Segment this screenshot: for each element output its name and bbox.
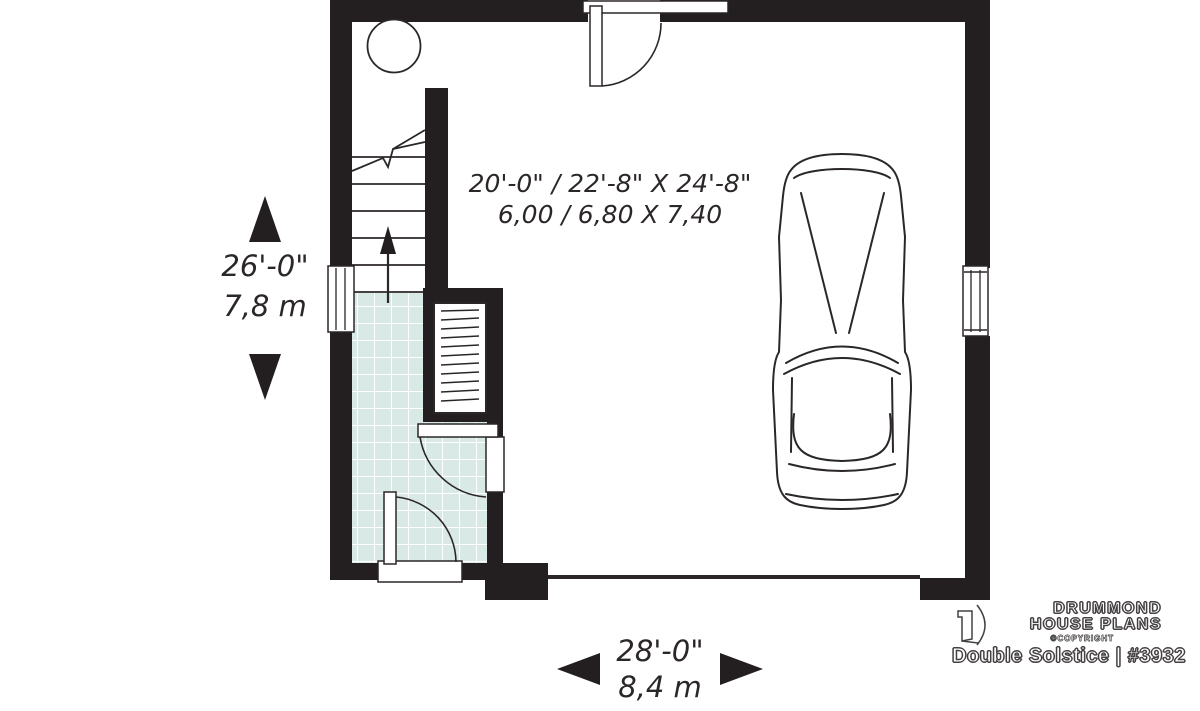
side-door-leaf <box>384 492 396 564</box>
right-window <box>963 266 988 336</box>
left-dimension-metric: 7,8 m <box>204 288 326 324</box>
branding-block: DRUMMOND HOUSE PLANS ©COPYRIGHT Double S… <box>952 601 1162 668</box>
left-window <box>328 266 354 332</box>
right-arrow-icon <box>720 653 763 685</box>
garage-dimensions-label: 20'-0" / 22'-8" X 24'-8" 6,00 / 6,80 X 7… <box>430 168 790 231</box>
bottom-dimension-metric: 8,4 m <box>590 669 730 705</box>
left-dimension: 26'-0" 7,8 m <box>204 196 326 401</box>
down-arrow-icon <box>249 354 281 400</box>
entry-door <box>583 1 728 86</box>
drummond-logo: DRUMMOND HOUSE PLANS <box>952 601 1162 633</box>
car-illustration <box>773 154 911 509</box>
stairs <box>352 130 425 303</box>
vestibule-door-opening <box>486 437 504 492</box>
closet-shelves <box>434 303 486 413</box>
floor-plan-page: 20'-0" / 22'-8" X 24'-8" 6,00 / 6,80 X 7… <box>0 0 1200 711</box>
vestibule-door-leaf <box>418 424 498 437</box>
garage-dimension-metric: 6,00 / 6,80 X 7,40 <box>430 199 790 230</box>
up-arrow-icon <box>249 196 281 242</box>
left-dimension-imperial: 26'-0" <box>204 248 326 284</box>
bottom-dimension-imperial: 28'-0" <box>590 633 730 669</box>
garage-dimension-imperial: 20'-0" / 22'-8" X 24'-8" <box>430 168 790 199</box>
drummond-d-icon <box>952 601 994 649</box>
bottom-dimension: 28'-0" 8,4 m <box>545 633 775 708</box>
logo-name-line1: DRUMMOND <box>1030 601 1162 617</box>
entry-door-leaf <box>590 6 602 86</box>
entry-door-step <box>583 1 728 13</box>
entry-door-swing-arc <box>602 23 661 86</box>
logo-name-line2: HOUSE PLANS <box>1030 617 1162 633</box>
column-circle <box>368 20 421 73</box>
